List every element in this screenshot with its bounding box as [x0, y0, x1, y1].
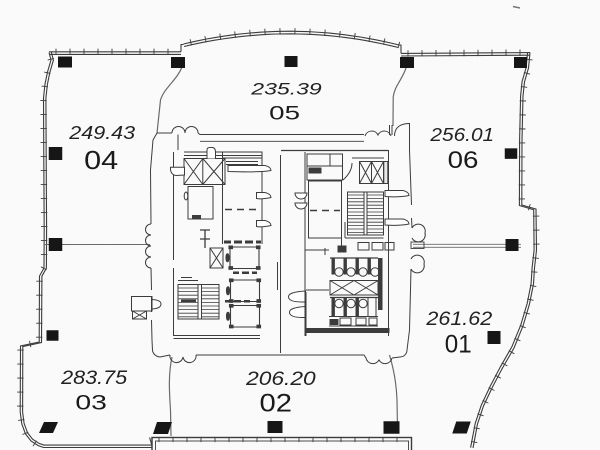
svg-text:02: 02 [260, 390, 293, 418]
svg-text:06: 06 [448, 148, 479, 174]
svg-text:261.62: 261.62 [425, 308, 492, 330]
svg-text:206.20: 206.20 [245, 368, 316, 390]
svg-text:01: 01 [445, 330, 472, 358]
svg-text:04: 04 [84, 145, 118, 175]
svg-text:256.01: 256.01 [429, 124, 494, 145]
svg-text:249.43: 249.43 [68, 122, 136, 143]
svg-text:283.75: 283.75 [60, 367, 127, 389]
svg-text:03: 03 [75, 390, 107, 415]
svg-text:235.39: 235.39 [250, 80, 322, 99]
svg-text:05: 05 [269, 103, 300, 125]
